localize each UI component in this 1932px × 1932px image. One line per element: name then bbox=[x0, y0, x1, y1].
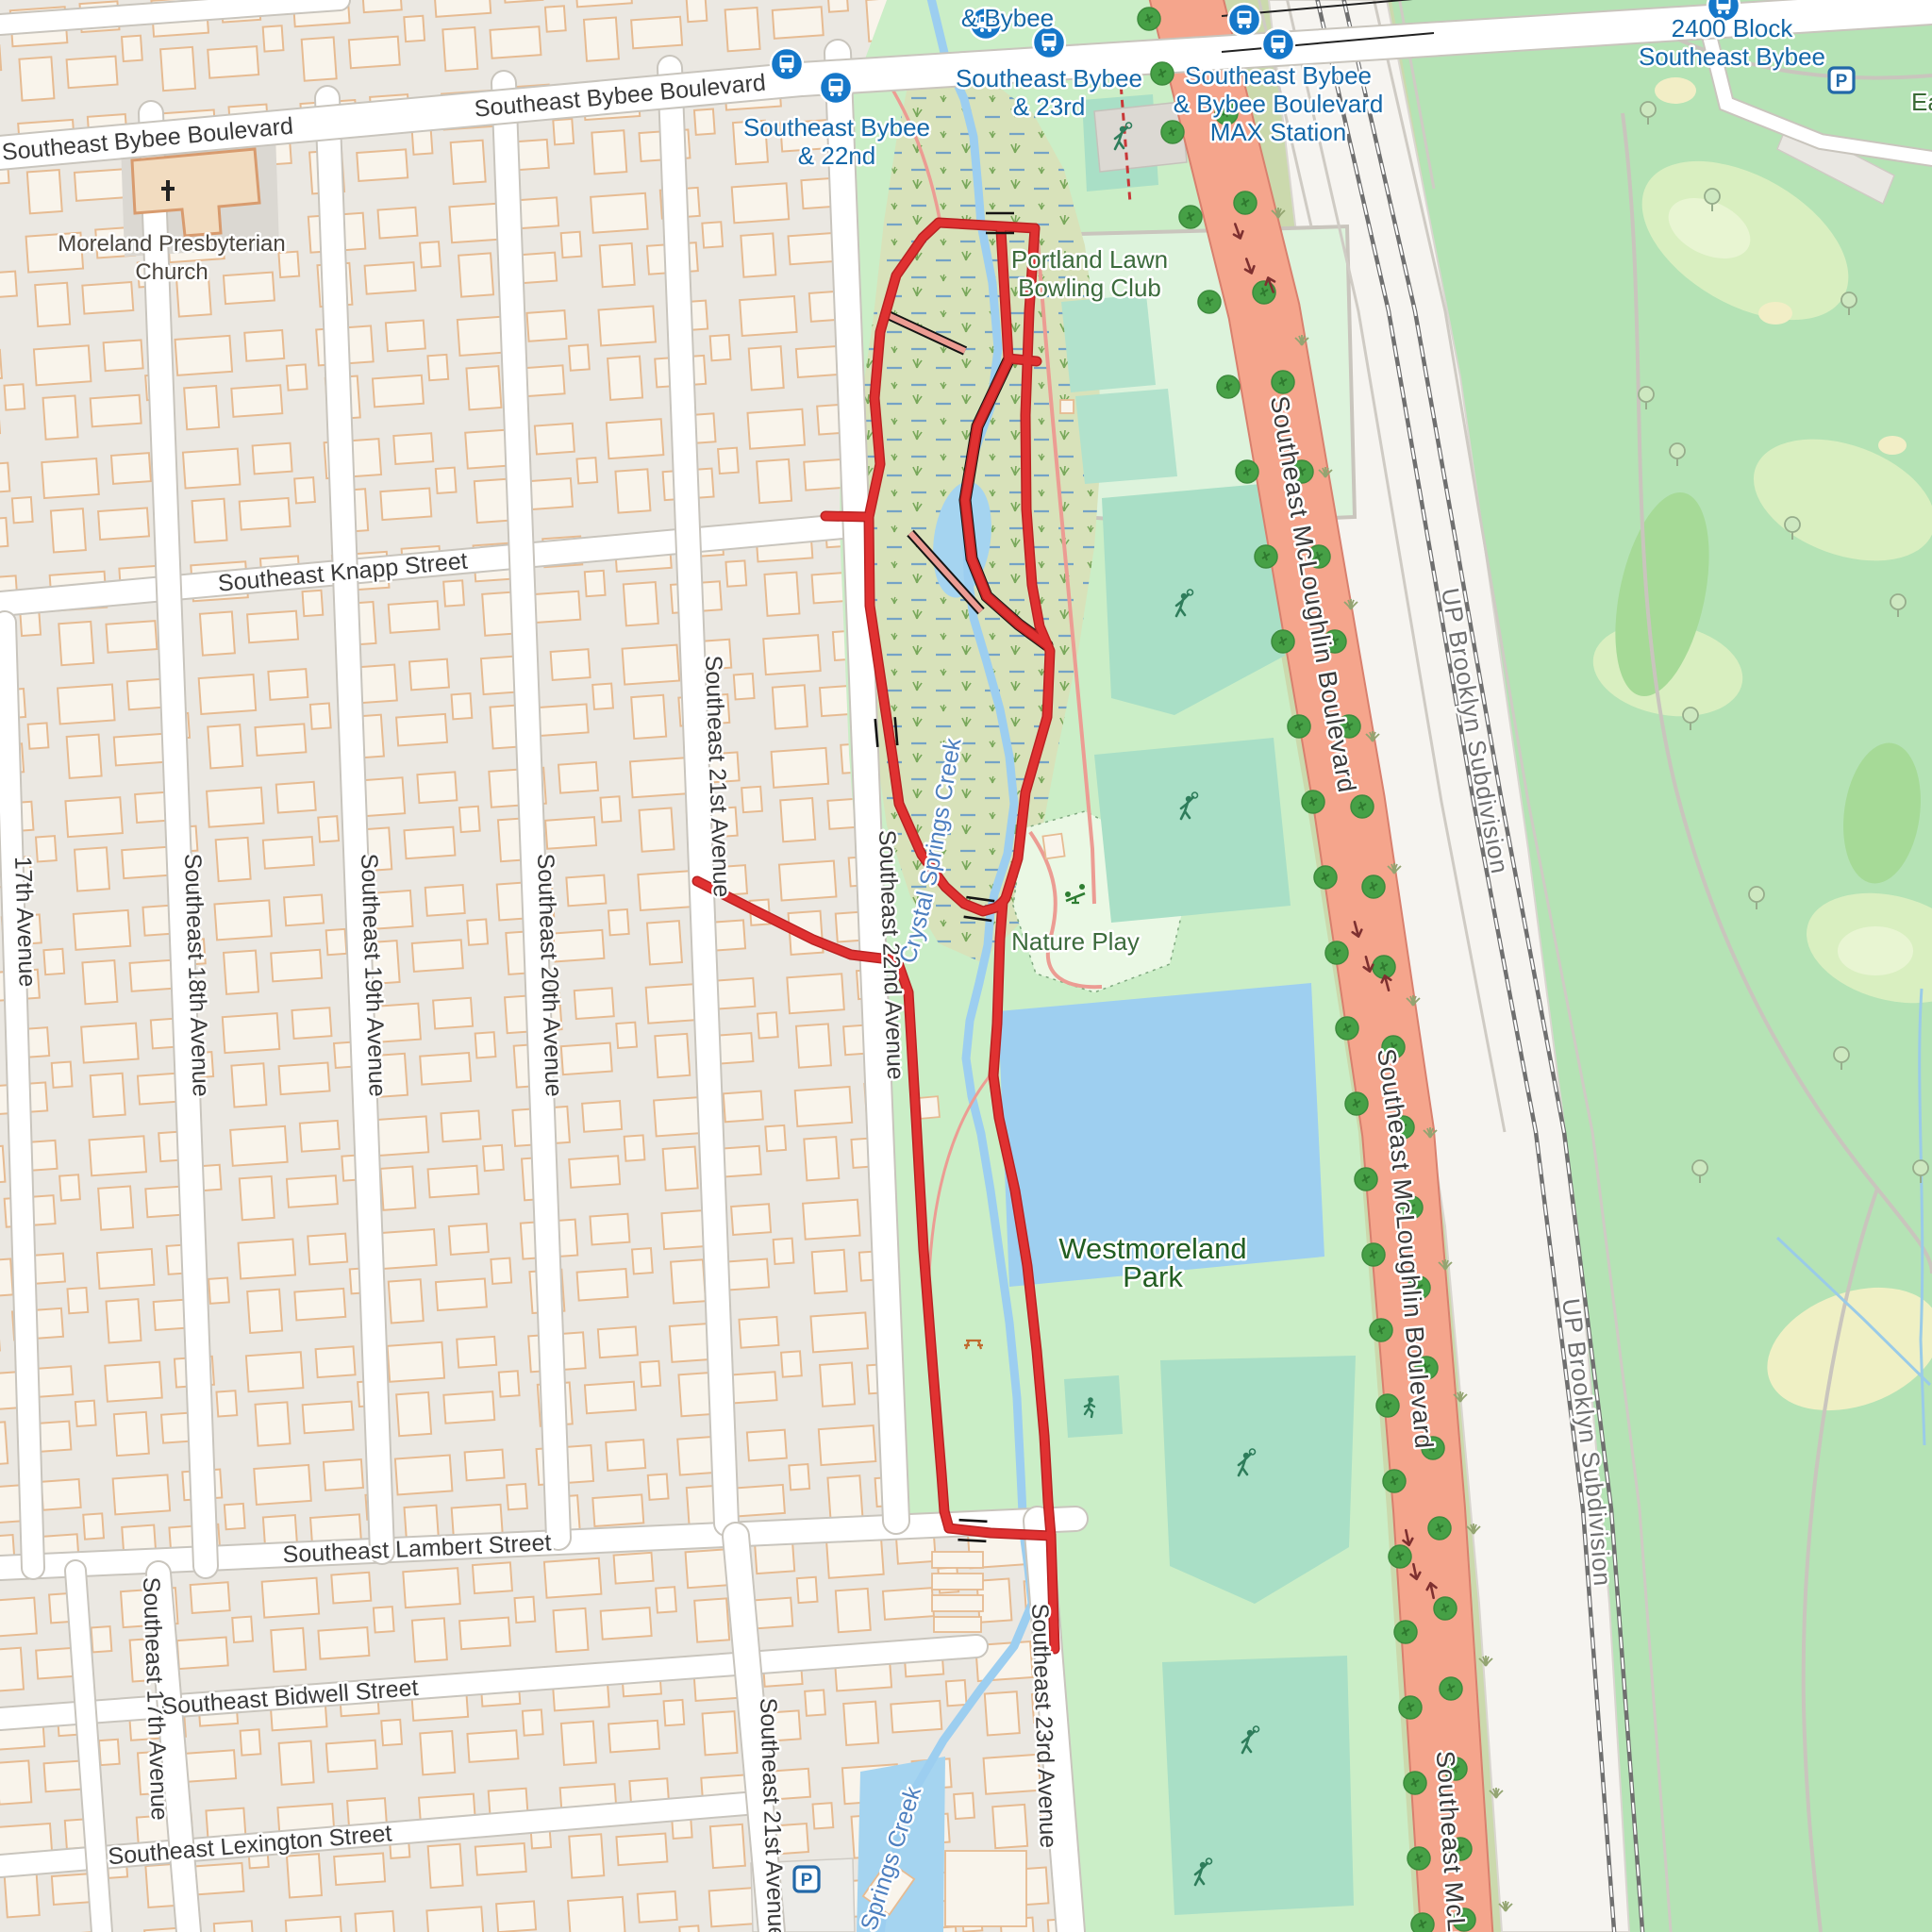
stop-bybee-partial: & Bybee bbox=[961, 4, 1054, 32]
svg-text:P: P bbox=[801, 1871, 813, 1890]
bus-stop-icon[interactable] bbox=[771, 48, 803, 80]
bus-stop-icon[interactable] bbox=[1228, 4, 1260, 36]
tree-icon bbox=[1376, 1394, 1399, 1417]
tree-icon bbox=[1234, 192, 1257, 214]
gps-route bbox=[825, 516, 869, 517]
svg-text:P: P bbox=[1836, 72, 1848, 92]
building bbox=[932, 1574, 983, 1590]
tree-icon bbox=[1345, 1092, 1368, 1115]
building bbox=[932, 1552, 983, 1568]
tree-icon bbox=[1394, 1621, 1417, 1643]
pitch-large-2 bbox=[1094, 738, 1291, 923]
bowling-green-1 bbox=[1061, 294, 1156, 392]
tree-icon bbox=[1288, 715, 1310, 738]
tree-icon bbox=[1179, 206, 1202, 228]
tree-icon bbox=[1407, 1847, 1430, 1870]
building bbox=[1060, 400, 1074, 413]
tree-icon bbox=[1428, 1517, 1451, 1540]
building bbox=[934, 1617, 981, 1632]
tree-icon bbox=[1370, 1319, 1392, 1341]
tree-icon bbox=[1362, 1243, 1385, 1266]
tree-icon bbox=[1389, 1545, 1411, 1568]
map-canvas[interactable]: PPSoutheast Bybee& 22ndSoutheast Bybee& … bbox=[0, 0, 1932, 1932]
tree-icon bbox=[1272, 630, 1294, 653]
parking-icon[interactable]: P bbox=[1829, 68, 1854, 92]
tree-icon bbox=[1434, 1597, 1457, 1620]
tree-icon bbox=[1236, 460, 1258, 483]
tree-icon bbox=[1362, 875, 1385, 898]
tree-icon bbox=[1399, 1696, 1422, 1719]
bowling-green-2 bbox=[1075, 389, 1177, 484]
tree-icon bbox=[1404, 1772, 1426, 1794]
portland-lawn-bowling-club: Portland LawnBowling Club bbox=[1011, 245, 1168, 302]
tree-icon bbox=[1272, 371, 1294, 393]
tree-icon bbox=[1314, 866, 1337, 889]
tree-icon bbox=[1198, 291, 1221, 313]
building bbox=[945, 1851, 1026, 1926]
gps-route bbox=[1008, 358, 1037, 361]
parking-icon[interactable]: P bbox=[794, 1867, 819, 1891]
tree-icon bbox=[1383, 1470, 1406, 1492]
tree-icon bbox=[1302, 791, 1324, 813]
tree-icon bbox=[1355, 1168, 1377, 1191]
tree-icon bbox=[1217, 375, 1240, 398]
tree-icon bbox=[1336, 1017, 1358, 1040]
map-svg[interactable]: PPSoutheast Bybee& 22ndSoutheast Bybee& … bbox=[0, 0, 1932, 1932]
tree-icon bbox=[1325, 941, 1348, 964]
golf-green-2 bbox=[1838, 926, 1913, 975]
golf-sand-1 bbox=[1655, 77, 1696, 104]
building bbox=[1042, 834, 1064, 859]
bus-stop-icon[interactable] bbox=[1262, 28, 1294, 60]
tree-icon bbox=[1440, 1677, 1462, 1700]
se-17th-avenue-partial-label: 17th Avenue bbox=[9, 856, 41, 987]
golf-sand-2 bbox=[1758, 302, 1792, 325]
tree-icon bbox=[1255, 545, 1277, 568]
building bbox=[932, 1595, 983, 1611]
tree-icon bbox=[1151, 62, 1174, 85]
tree-icon bbox=[1161, 121, 1184, 143]
tree-icon bbox=[1351, 795, 1374, 818]
tree-icon bbox=[1253, 281, 1275, 304]
golf-ea-partial: Ea bbox=[1911, 88, 1932, 116]
tree-icon bbox=[1411, 1913, 1434, 1932]
golf-sand-3 bbox=[1878, 436, 1907, 455]
tree-icon bbox=[1138, 8, 1160, 30]
bus-stop-icon[interactable] bbox=[820, 72, 852, 104]
pitch-bottom bbox=[1162, 1656, 1354, 1915]
nature-play-label: Nature Play bbox=[1011, 927, 1140, 956]
building bbox=[919, 1096, 940, 1119]
